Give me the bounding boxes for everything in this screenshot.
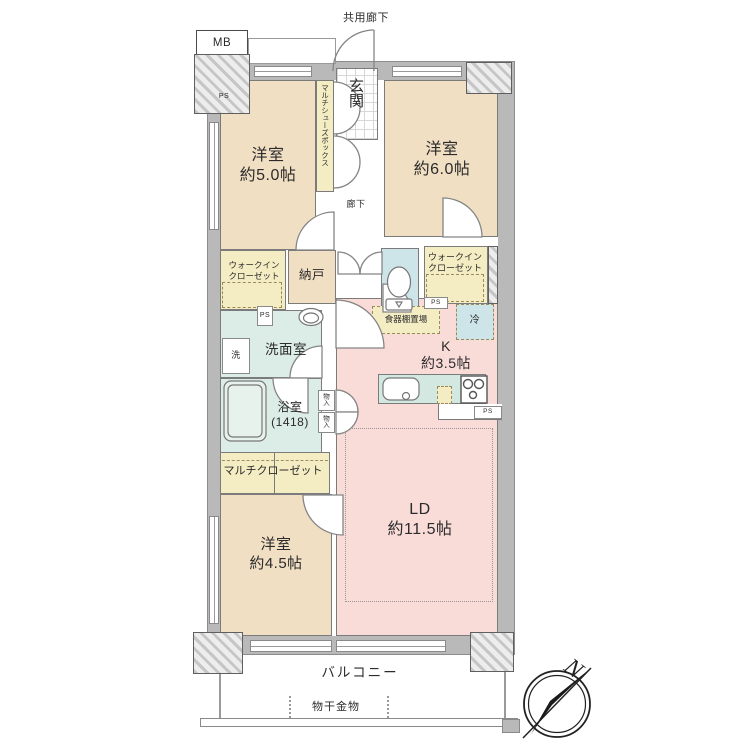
pipe-space-label-1: PS xyxy=(219,93,229,102)
storage-room-label: 納戸 xyxy=(299,268,325,284)
bedroom3-label: 洋室約4.5帖 xyxy=(249,536,302,574)
shoe-box-label: マルチシューズボックス xyxy=(321,84,329,167)
meter-box-label: MB xyxy=(213,36,231,50)
wic-left-label: ウォークインクローゼット xyxy=(228,260,279,281)
washer-label: 洗 xyxy=(231,350,241,361)
nando-door-arc-left xyxy=(338,252,360,274)
doors-and-fixtures-layer: N xyxy=(0,0,740,740)
compass-north-label: N xyxy=(558,653,589,685)
pipe-space-label-3: PS xyxy=(431,299,441,307)
washroom-label: 洗面室 xyxy=(265,342,307,359)
bedroom2-label: 洋室約6.0帖 xyxy=(414,140,471,180)
common-corridor-label: 共用廊下 xyxy=(343,12,389,26)
wic-right-label: ウォークインクローゼット xyxy=(428,252,482,275)
kitchen-label: K約3.5帖 xyxy=(421,338,471,372)
pipe-space-label-4: PS xyxy=(483,408,493,416)
ld-door-arc xyxy=(336,300,384,348)
hallway-label: 廊下 xyxy=(346,199,365,210)
refrigerator-label: 冷 xyxy=(470,315,481,328)
kitchen-sink-icon xyxy=(383,378,419,400)
storage-label-2: 物入 xyxy=(321,415,328,428)
storage-door-arc-upper xyxy=(336,390,358,412)
shoebox-door-arc-2 xyxy=(334,136,360,188)
cupboard-space-label: 食器棚置場 xyxy=(385,314,428,325)
multi-closet-label: マルチクローゼット xyxy=(224,465,323,479)
pipe-space-label-2: PS xyxy=(260,312,270,321)
bedroom2-door-arc xyxy=(443,198,482,237)
bathtub-icon xyxy=(224,381,266,441)
toilet-bowl-icon xyxy=(388,267,411,297)
living-dining-label: LD約11.5帖 xyxy=(388,500,453,540)
storage-label-1: 物入 xyxy=(321,393,328,406)
compass-icon: N xyxy=(523,653,591,738)
genkan-label: 玄関 xyxy=(348,78,363,108)
bathroom-label: 浴室(1418) xyxy=(271,400,309,430)
toilet-tank-icon xyxy=(386,299,412,310)
balcony-label: バルコニー xyxy=(321,665,398,682)
nando-door-arc-right xyxy=(360,252,382,274)
entry-door-arc xyxy=(333,30,374,71)
floor-plan: N 共用廊下 MB 玄関 マルチシューズボックス 廊下 洋室約5.0帖 洋室約6… xyxy=(0,0,740,740)
laundry-hardware-label: 物干金物 xyxy=(312,701,360,715)
storage-door-arc-lower xyxy=(336,412,358,434)
bedroom3-door-arc xyxy=(303,495,343,535)
bedroom1-label: 洋室約5.0帖 xyxy=(240,146,297,186)
bedroom1-door-arc xyxy=(296,212,334,250)
